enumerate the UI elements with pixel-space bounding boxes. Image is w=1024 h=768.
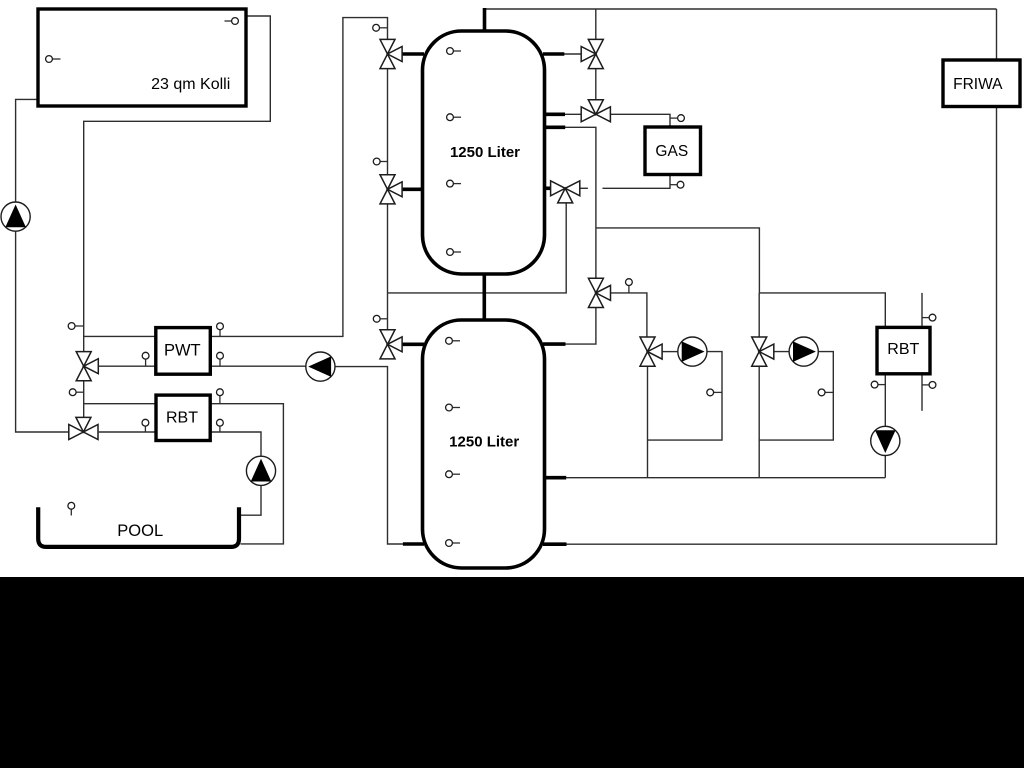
svg-text:23 qm Kolli: 23 qm Kolli (151, 76, 230, 93)
svg-text:FRIWA: FRIWA (953, 76, 1003, 93)
svg-text:RBT: RBT (166, 410, 198, 427)
svg-text:POOL: POOL (117, 522, 163, 540)
svg-text:PWT: PWT (164, 342, 201, 360)
svg-text:1250 Liter: 1250 Liter (450, 144, 520, 161)
svg-text:1250 Liter: 1250 Liter (449, 433, 519, 450)
svg-text:RBT: RBT (887, 341, 919, 358)
svg-text:GAS: GAS (655, 143, 688, 160)
